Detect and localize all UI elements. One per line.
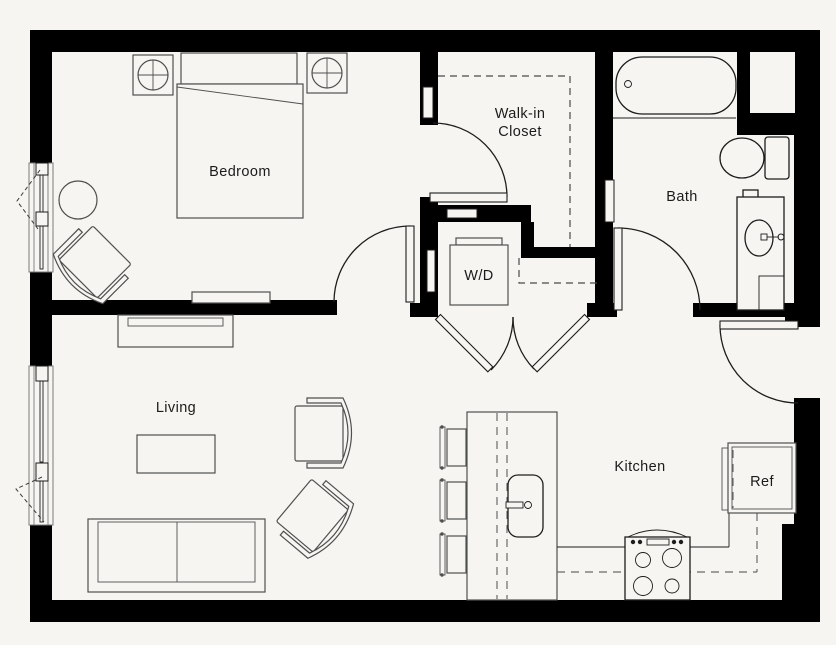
wall-stub-right-of-doors [587,303,617,317]
door-swing-arc [491,317,513,370]
range-stove [625,530,690,600]
door-swing-arc [720,325,798,403]
nightstand-right [307,53,347,93]
stool-back [440,534,445,575]
wall-bedroom-living [30,300,337,315]
wall-bottom [30,600,820,622]
side-table [59,181,97,219]
bedroom-door [334,226,414,302]
bar-stool [440,425,466,469]
door-leaf [532,315,589,372]
floor-plan-canvas: Ref Bedroom Walk-in Closet Bath W/D Livi… [0,0,836,645]
entry-door [720,321,798,403]
door-leaf [430,193,507,202]
room-label-walk-in-closet-line1: Walk-in [495,106,546,122]
stool-seat [447,482,466,519]
plumbing-chase-niche [750,52,795,113]
refrigerator: Ref [722,443,796,513]
wall-inset-closet-south [447,209,477,218]
wall-stub-left-of-doors [410,303,438,317]
stove-back-edge [628,530,687,537]
stool-dot [440,532,443,535]
window-mullion [36,463,48,481]
bed [177,53,303,218]
stove-knob [631,540,635,544]
stool-dot [440,425,443,428]
faucet-base [761,234,767,240]
stove-control-panel [647,539,669,545]
room-label-laundry: W/D [464,268,493,284]
room-label-kitchen: Kitchen [614,459,665,475]
bathtub [613,57,736,118]
console-body [118,315,233,347]
room-label-bedroom: Bedroom [209,164,271,180]
window-mullion [36,212,48,226]
stool-seat [447,429,466,466]
washer-dryer-back [456,238,502,245]
window-mullion [36,366,48,381]
accent-chair-1 [295,398,352,468]
bedroom-armchair [47,220,136,309]
stool-back [440,480,445,521]
stove-knob [672,540,676,544]
kitchen-island [467,412,557,600]
bed-mattress [177,84,303,218]
stool-dot [440,519,443,522]
bed-headboard [181,53,297,84]
stool-dot [440,573,443,576]
window-frame [29,366,53,525]
bar-stool [440,532,466,576]
sink-faucet-base [506,502,523,508]
room-label-bath: Bath [666,189,697,205]
laundry-double-doors [436,315,590,372]
nightstand-left [133,55,173,95]
chair-seat [295,406,343,461]
toilet [720,137,789,179]
bedroom-shelf [192,292,270,303]
toilet-tank [765,137,789,179]
door-swing-arc [513,317,534,369]
bathtub-outline [616,57,736,114]
door-leaf [614,228,622,310]
wall-inset-bath [605,180,614,222]
wall-left [30,30,52,622]
sofa-outline [88,519,265,592]
coffee-table [137,435,215,473]
wall-right-lower [794,398,820,622]
bar-stools [440,425,466,576]
wall-closet-bath [595,52,613,303]
stool-dot [440,478,443,481]
window-bedroom [17,163,53,272]
door-swing-arc [334,226,410,302]
stove-knob [679,540,683,544]
stool-seat [447,536,466,573]
chair-seat [59,226,131,298]
door-swing-arc [433,123,507,197]
closet-shelf-dashed [519,258,600,283]
room-label-living: Living [156,400,196,416]
stove-knob [638,540,642,544]
wall-top [30,30,820,52]
closet-door [430,123,507,202]
media-console [118,315,233,347]
door-leaf [406,226,414,302]
accent-chair-2 [271,473,360,564]
sofa [88,519,265,592]
floor-plan: Ref Bedroom Walk-in Closet Bath W/D Livi… [0,0,836,645]
wall-closet-south-east [521,247,608,258]
door-leaf [436,315,493,372]
stool-back [440,427,445,468]
window-living [16,366,53,525]
vanity-sink [737,190,784,310]
wall-inset-closet [423,87,433,118]
door-leaf [720,321,798,329]
door-swing-arc [618,228,700,310]
bath-door [614,228,700,310]
wall-inset-laundry [427,250,435,292]
wall-kitchen-return [782,524,794,600]
room-label-refrigerator: Ref [750,474,774,490]
stool-dot [440,466,443,469]
room-label-walk-in-closet-line2: Closet [498,124,542,140]
toilet-bowl [720,138,764,178]
vanity-counter [737,197,784,310]
bar-stool [440,478,466,522]
